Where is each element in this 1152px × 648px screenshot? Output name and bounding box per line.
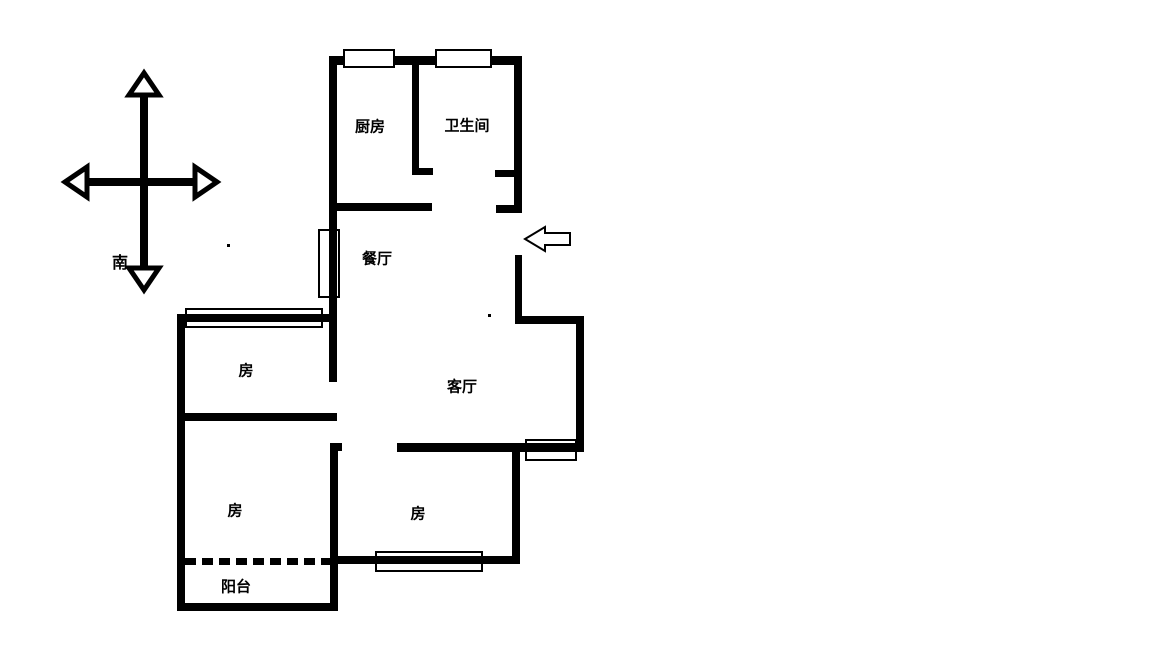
compass-west-arrowhead xyxy=(65,167,87,197)
living-window xyxy=(525,439,577,461)
room-label-balcony: 阳台 xyxy=(221,580,251,595)
bathroom-window xyxy=(435,49,492,68)
entrance-arrow-icon xyxy=(523,225,573,253)
wall-kitchen-bath-divider xyxy=(412,62,419,175)
wall-west-upper xyxy=(329,56,337,382)
room-label-bathroom: 卫生间 xyxy=(444,119,489,134)
speck-2 xyxy=(488,314,491,317)
compass-north-arrowhead xyxy=(129,73,159,95)
room-label-living-room: 客厅 xyxy=(447,380,477,395)
wall-divider-foot xyxy=(412,168,433,175)
compass-east-arrowhead xyxy=(195,167,217,197)
wall-entry-jamb-upper xyxy=(496,205,522,213)
bedroom-middle-window xyxy=(375,551,483,572)
wall-kitchen-south xyxy=(329,203,432,211)
wall-west-outer xyxy=(177,314,185,611)
dining-window xyxy=(318,229,340,298)
wall-bath-east xyxy=(514,56,522,213)
floor-plan-canvas: 南 厨房卫生间餐厅客厅房房房阳台 xyxy=(0,0,1152,648)
wall-entry-jamb-lower xyxy=(515,255,522,324)
kitchen-window xyxy=(343,49,395,68)
wall-balcony-south xyxy=(177,603,338,611)
room-label-dining-room: 餐厅 xyxy=(362,252,392,267)
room-label-bedroom-north: 房 xyxy=(238,364,253,379)
balcony-dashed-divider xyxy=(185,558,330,565)
wall-east-outer xyxy=(576,316,584,452)
wall-east-mid-horizontal xyxy=(515,316,583,324)
room-label-bedroom-middle: 房 xyxy=(410,507,425,522)
wall-bedroom-middle-east xyxy=(512,452,520,564)
compass-icon xyxy=(58,64,222,296)
room-label-bedroom-south: 房 xyxy=(227,504,242,519)
compass-south-label: 南 xyxy=(112,255,128,271)
speck-1 xyxy=(227,244,230,247)
wall-bedrooms-divider xyxy=(177,413,337,421)
compass-south-arrowhead xyxy=(129,268,159,290)
wall-west-mid-vertical xyxy=(330,443,338,611)
wall-bath-door-jamb xyxy=(495,170,514,177)
bedroom-north-window xyxy=(185,308,323,328)
room-label-kitchen: 厨房 xyxy=(355,120,385,135)
